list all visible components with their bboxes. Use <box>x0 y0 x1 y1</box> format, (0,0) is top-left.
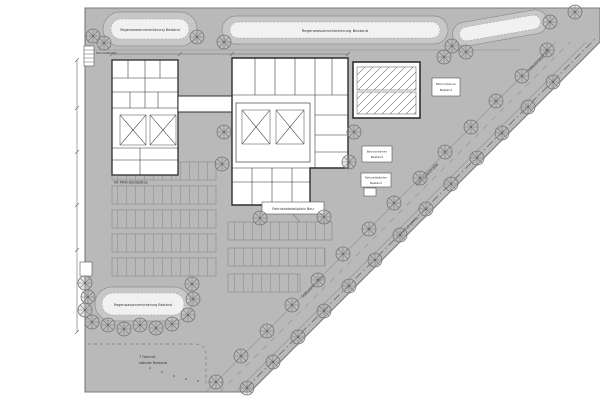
building-connector <box>178 96 232 112</box>
tree-icon <box>181 308 195 322</box>
tree-icon <box>336 247 350 261</box>
tree-icon <box>568 5 582 19</box>
tree-icon <box>165 317 179 331</box>
bike-rack-box <box>84 46 94 66</box>
basin-top-center-label: Regenwasserversickerung Bestand <box>302 28 369 33</box>
tree-icon <box>387 196 401 210</box>
svg-text:Bestand: Bestand <box>371 155 383 159</box>
tree-icon <box>311 273 325 287</box>
tree-icon <box>215 157 229 171</box>
tree-icon <box>413 171 427 185</box>
site-plan-drawing: Regenwasserversickerung Bestand Regenwas… <box>0 0 600 400</box>
basin-top-center: Regenwasserversickerung Bestand <box>222 16 448 44</box>
basin-top-left-label: Regenwasserversickerung Bestand <box>120 28 179 32</box>
bike-stands-label-line1: 7 Fahrrad- <box>139 355 157 359</box>
tree-icon <box>444 177 458 191</box>
parking-lot-west <box>112 162 216 276</box>
svg-text:Fahrradabstellplatz Neu: Fahrradabstellplatz Neu <box>272 207 314 211</box>
building-west <box>112 60 178 175</box>
tree-icon <box>253 211 267 225</box>
tree-icon <box>347 125 361 139</box>
tree-icon <box>101 318 115 332</box>
tree-icon <box>97 36 111 50</box>
tree-icon <box>521 100 535 114</box>
basin-bottom-left: Regenwasserversickerung Bestand <box>95 287 191 321</box>
tree-icon <box>81 290 95 304</box>
tree-icon <box>149 321 163 335</box>
parking-count-label: 96 PKW-Stellplätze <box>114 181 148 185</box>
baucontainer-sign: Baucontainer Bestand <box>362 146 392 162</box>
tree-icon <box>393 228 407 242</box>
tree-icon <box>78 303 92 317</box>
tree-icon <box>217 35 231 49</box>
tree-icon <box>342 279 356 293</box>
utility-box <box>80 262 92 276</box>
basin-top-left: Regenwasserversickerung Bestand <box>103 12 197 46</box>
svg-text:Fahrradständer: Fahrradständer <box>365 176 388 180</box>
tree-icon <box>260 324 274 338</box>
svg-text:Bestand: Bestand <box>440 88 452 92</box>
tree-icon <box>266 355 280 369</box>
tree-icon <box>546 75 560 89</box>
tree-icon <box>209 375 223 389</box>
tree-icon <box>190 30 204 44</box>
tree-icon <box>362 222 376 236</box>
tree-icon <box>133 318 147 332</box>
tree-icon <box>459 45 473 59</box>
tree-icon <box>117 322 131 336</box>
tree-icon <box>234 349 248 363</box>
basin-bottom-left-label: Regenwasserversickerung Bestand <box>114 303 172 307</box>
tree-icon <box>217 125 231 139</box>
tree-icon <box>317 304 331 318</box>
tree-icon <box>470 151 484 165</box>
tree-icon <box>317 210 331 224</box>
tree-icon <box>285 298 299 312</box>
tree-icon <box>515 69 529 83</box>
tree-icon <box>438 145 452 159</box>
building-carport <box>353 62 420 118</box>
bike-stands-label-line2: ständer Bestand <box>139 361 167 365</box>
svg-text:Müllcontainer: Müllcontainer <box>436 82 457 86</box>
tree-icon <box>185 277 199 291</box>
svg-text:Bestand: Bestand <box>370 181 382 185</box>
tree-icon <box>85 315 99 329</box>
tree-icon <box>543 15 557 29</box>
tree-icon <box>489 94 503 108</box>
tree-icon <box>78 276 92 290</box>
tree-icon <box>437 50 451 64</box>
svg-text:Baucontainer: Baucontainer <box>367 150 388 154</box>
tree-icon <box>495 126 509 140</box>
tree-icon <box>186 292 200 306</box>
tree-icon <box>291 330 305 344</box>
tree-icon <box>368 253 382 267</box>
tree-icon <box>540 43 554 57</box>
bike-rack-label: Fahrradständer <box>96 51 118 55</box>
tree-icon <box>419 202 433 216</box>
muellcontainer-sign: Müllcontainer Bestand <box>432 78 460 96</box>
tree-icon <box>342 155 356 169</box>
tree-icon <box>464 120 478 134</box>
tree-icon <box>240 381 254 395</box>
